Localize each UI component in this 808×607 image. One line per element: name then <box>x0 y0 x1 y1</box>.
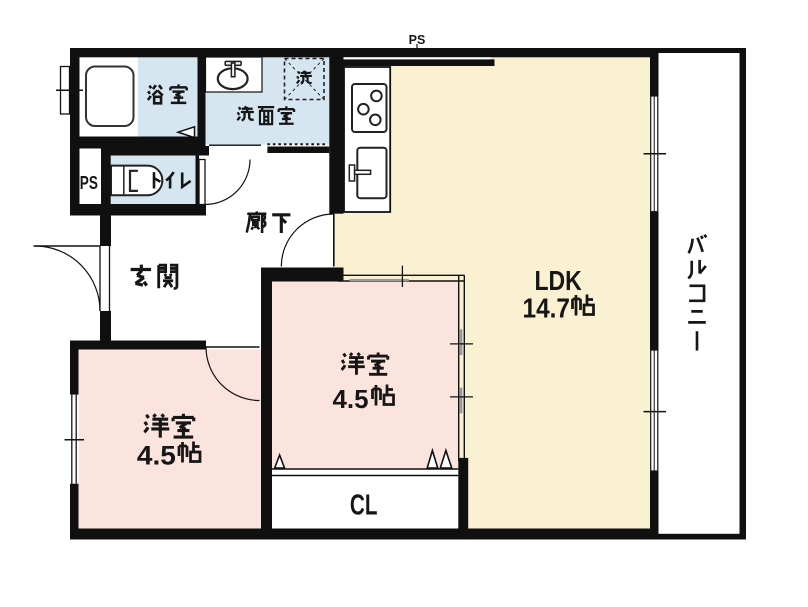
svg-text:CL: CL <box>350 490 378 522</box>
svg-text:14.7: 14.7 <box>523 293 571 324</box>
svg-text:4.5: 4.5 <box>333 384 369 414</box>
svg-text:PS: PS <box>80 172 98 193</box>
svg-text:PS: PS <box>409 33 426 47</box>
svg-text:4.5: 4.5 <box>137 441 176 471</box>
svg-text:LDK: LDK <box>535 265 582 296</box>
